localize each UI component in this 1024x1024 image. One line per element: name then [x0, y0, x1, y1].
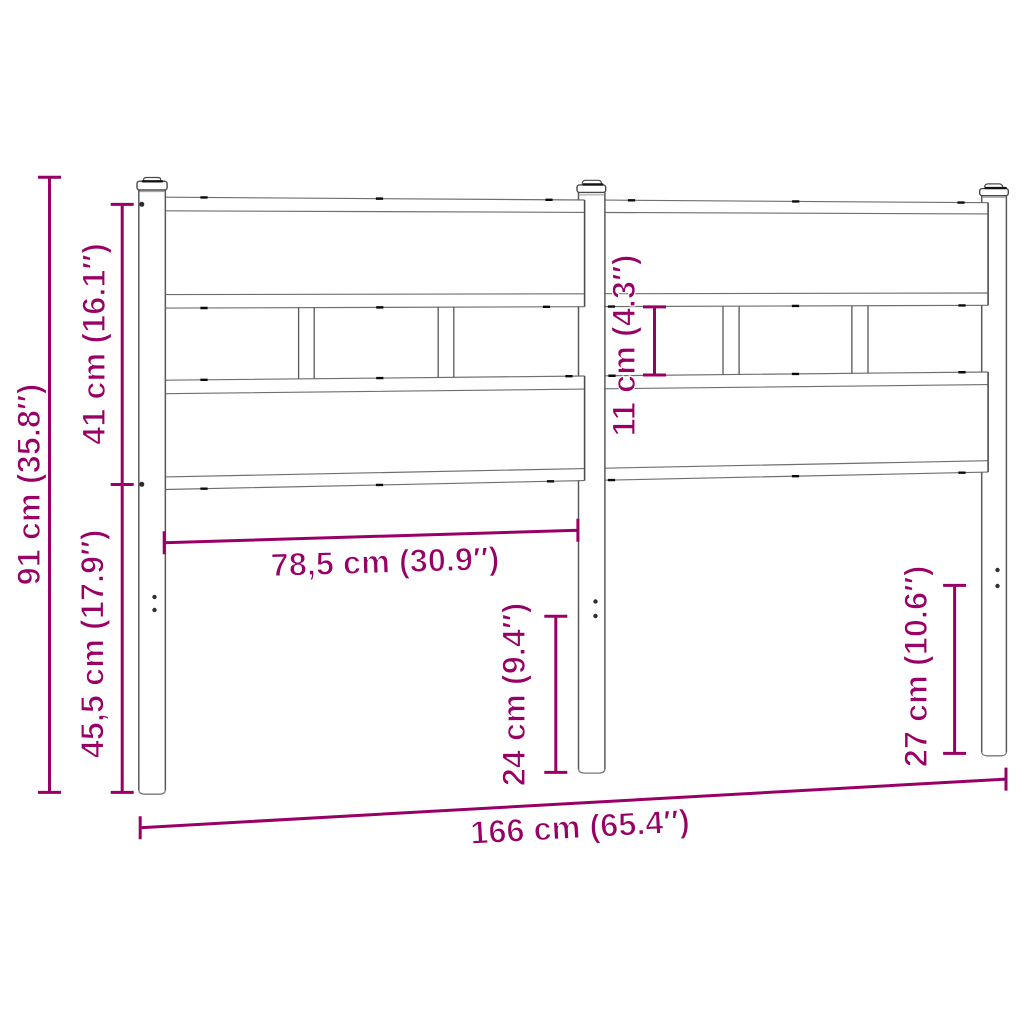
svg-text:24 cm (9.4″): 24 cm (9.4″)	[496, 603, 532, 787]
svg-text:41 cm (16.1″): 41 cm (16.1″)	[76, 243, 112, 445]
svg-text:91 cm (35.8″): 91 cm (35.8″)	[11, 384, 47, 586]
svg-text:45,5 cm (17.9″): 45,5 cm (17.9″)	[75, 530, 111, 759]
svg-text:27 cm (10.6″): 27 cm (10.6″)	[898, 566, 934, 768]
svg-text:78,5 cm (30.9″): 78,5 cm (30.9″)	[270, 540, 500, 583]
svg-text:11 cm (4.3″): 11 cm (4.3″)	[606, 255, 642, 437]
